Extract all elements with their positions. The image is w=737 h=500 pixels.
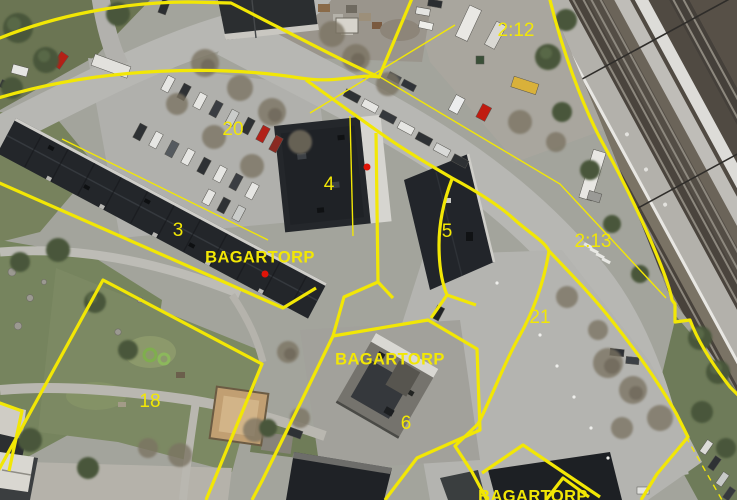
- red-point-marker-2: [262, 271, 269, 278]
- map-canvas[interactable]: 2:12 20 4 3 BAGARTORP 5 2:13 21 BAGARTOR…: [0, 0, 737, 500]
- building-4: [274, 115, 392, 233]
- red-point-marker-1: [364, 164, 371, 171]
- aerial-basemap: [0, 0, 737, 500]
